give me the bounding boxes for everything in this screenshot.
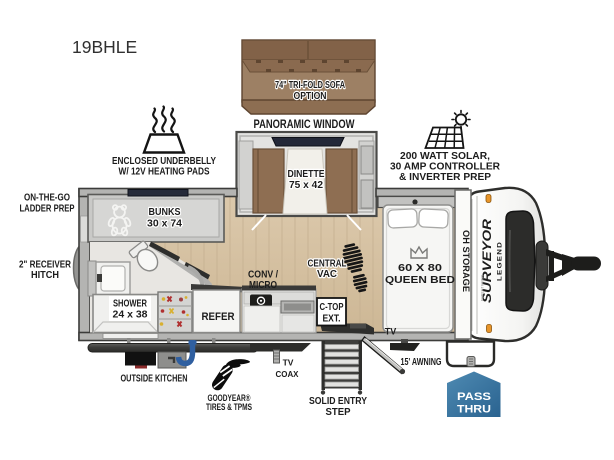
svg-text:CONV /: CONV / [248, 270, 278, 281]
svg-text:BUNKS: BUNKS [149, 206, 181, 218]
svg-text:OUTSIDE KITCHEN: OUTSIDE KITCHEN [121, 374, 188, 385]
svg-text:EXT.: EXT. [323, 313, 341, 325]
svg-text:TV: TV [283, 358, 294, 368]
svg-text:ON-THE-GO: ON-THE-GO [24, 193, 70, 204]
svg-text:15' AWNING: 15' AWNING [401, 357, 442, 368]
svg-text:COAX: COAX [276, 369, 299, 379]
svg-text:75 x 42: 75 x 42 [289, 180, 323, 191]
svg-text:SHOWER: SHOWER [113, 299, 148, 310]
svg-text:19BHLE: 19BHLE [72, 37, 137, 57]
svg-text:MICRO: MICRO [249, 280, 277, 291]
svg-text:ENCLOSED UNDERBELLY: ENCLOSED UNDERBELLY [112, 156, 216, 167]
svg-text:C-TOP: C-TOP [320, 301, 344, 313]
svg-text:THRU: THRU [457, 404, 491, 416]
svg-text:24 x 38: 24 x 38 [113, 310, 148, 321]
svg-text:HITCH: HITCH [31, 270, 59, 281]
svg-text:DINETTE: DINETTE [288, 169, 325, 180]
svg-text:FOREST RIVER: FOREST RIVER [481, 275, 485, 301]
svg-text:& INVERTER PREP: & INVERTER PREP [399, 171, 491, 183]
svg-text:CENTRAL: CENTRAL [308, 259, 347, 270]
svg-text:STEP: STEP [326, 407, 351, 418]
svg-text:OPTION: OPTION [294, 90, 327, 102]
svg-text:2" RECEIVER: 2" RECEIVER [19, 260, 71, 271]
svg-text:30 x 74: 30 x 74 [147, 218, 182, 230]
svg-text:QUEEN BED: QUEEN BED [385, 274, 455, 286]
svg-text:60 X 80: 60 X 80 [398, 262, 442, 274]
svg-text:W/ 12V HEATING PADS: W/ 12V HEATING PADS [119, 167, 210, 178]
svg-text:TIRES & TPMS: TIRES & TPMS [206, 402, 252, 413]
svg-text:LADDER PREP: LADDER PREP [20, 204, 75, 215]
svg-text:PASS: PASS [457, 391, 491, 403]
svg-text:PANORAMIC WINDOW: PANORAMIC WINDOW [254, 119, 355, 131]
svg-text:VAC: VAC [317, 269, 337, 280]
svg-text:SOLID ENTRY: SOLID ENTRY [309, 396, 367, 407]
svg-text:TV: TV [385, 327, 397, 337]
svg-text:OH STORAGE: OH STORAGE [461, 230, 471, 292]
svg-text:LEGEND: LEGEND [497, 241, 504, 281]
svg-text:REFER: REFER [202, 311, 235, 323]
